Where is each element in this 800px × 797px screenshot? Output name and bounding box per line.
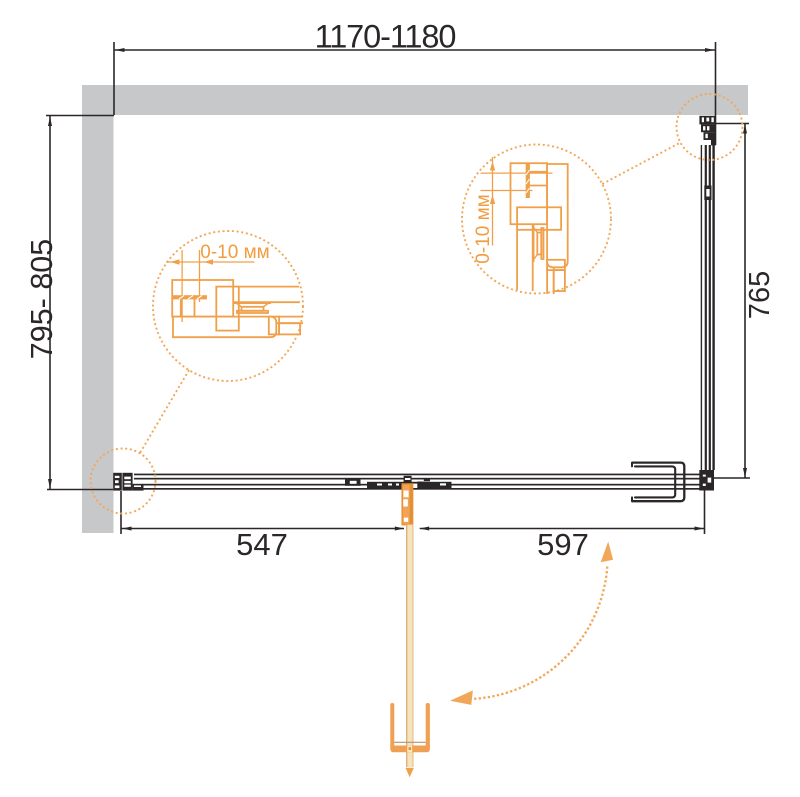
svg-text:597: 597: [537, 527, 589, 562]
svg-text:765: 765: [744, 271, 776, 319]
svg-text:0-10 мм: 0-10 мм: [473, 194, 494, 263]
svg-text:795- 805: 795- 805: [25, 239, 59, 359]
svg-text:0-10 мм: 0-10 мм: [200, 242, 269, 263]
svg-text:1170-1180: 1170-1180: [315, 19, 456, 55]
svg-text:547: 547: [236, 527, 288, 562]
